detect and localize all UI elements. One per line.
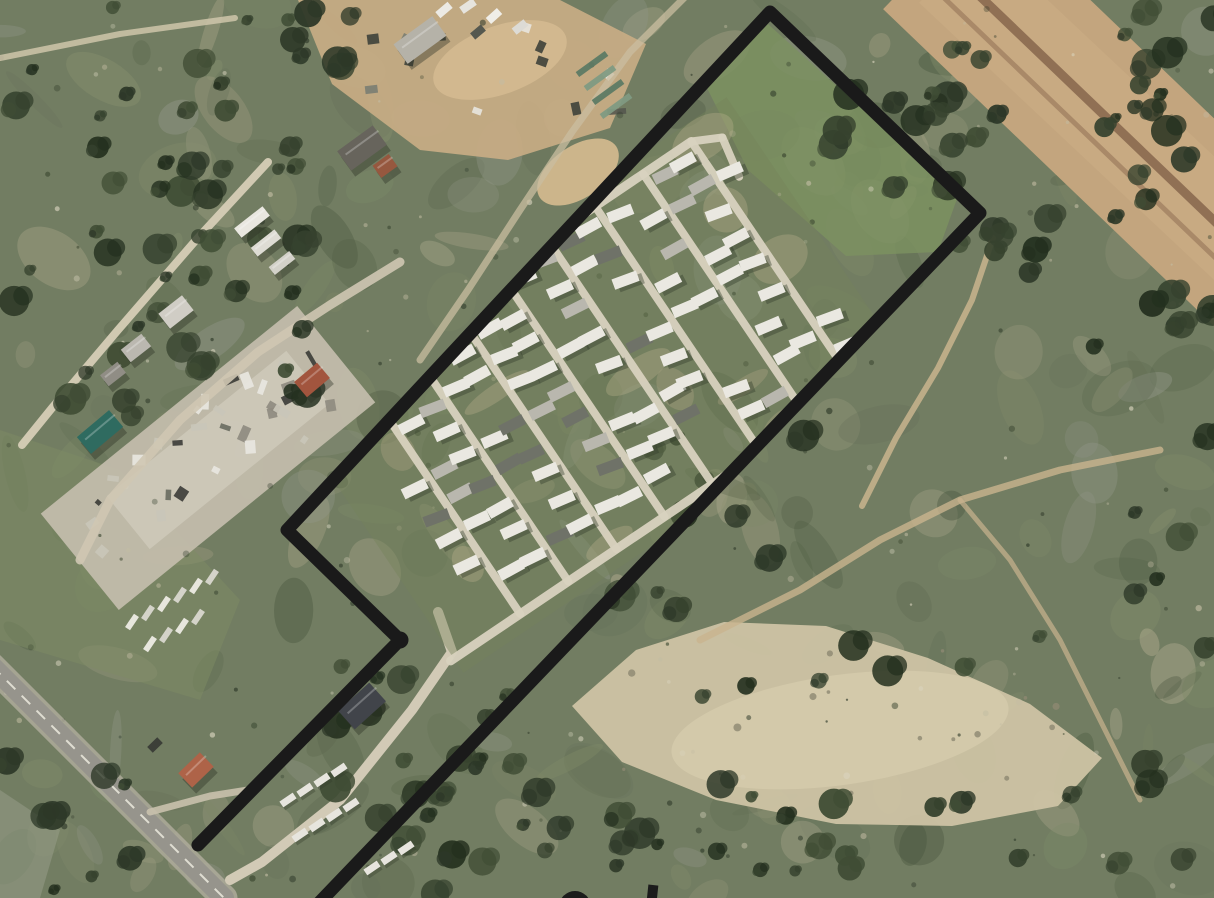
map-viewport[interactable]: [0, 0, 1214, 898]
satellite-canvas[interactable]: [0, 0, 1214, 898]
